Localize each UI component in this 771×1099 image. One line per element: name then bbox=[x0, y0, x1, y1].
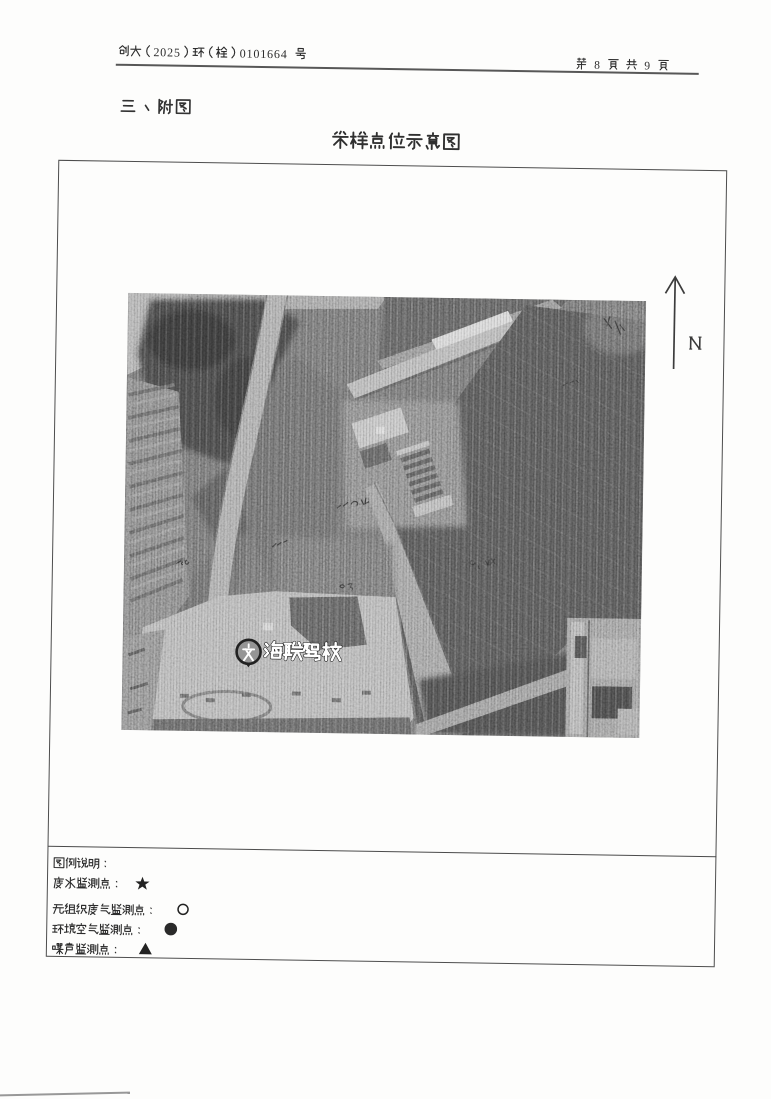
svg-text:2: 2 bbox=[153, 46, 159, 60]
svg-text:8: 8 bbox=[594, 60, 600, 72]
svg-text:9: 9 bbox=[644, 60, 650, 72]
svg-text:4: 4 bbox=[280, 48, 286, 62]
svg-text:1: 1 bbox=[246, 47, 252, 61]
svg-text:0: 0 bbox=[160, 46, 166, 60]
svg-text:5: 5 bbox=[173, 46, 179, 60]
svg-text:2: 2 bbox=[166, 46, 172, 60]
svg-text:0: 0 bbox=[253, 47, 259, 61]
svg-text:1: 1 bbox=[260, 47, 266, 61]
svg-text:6: 6 bbox=[273, 47, 279, 61]
svg-text:6: 6 bbox=[267, 47, 273, 61]
svg-text:0: 0 bbox=[239, 47, 245, 61]
